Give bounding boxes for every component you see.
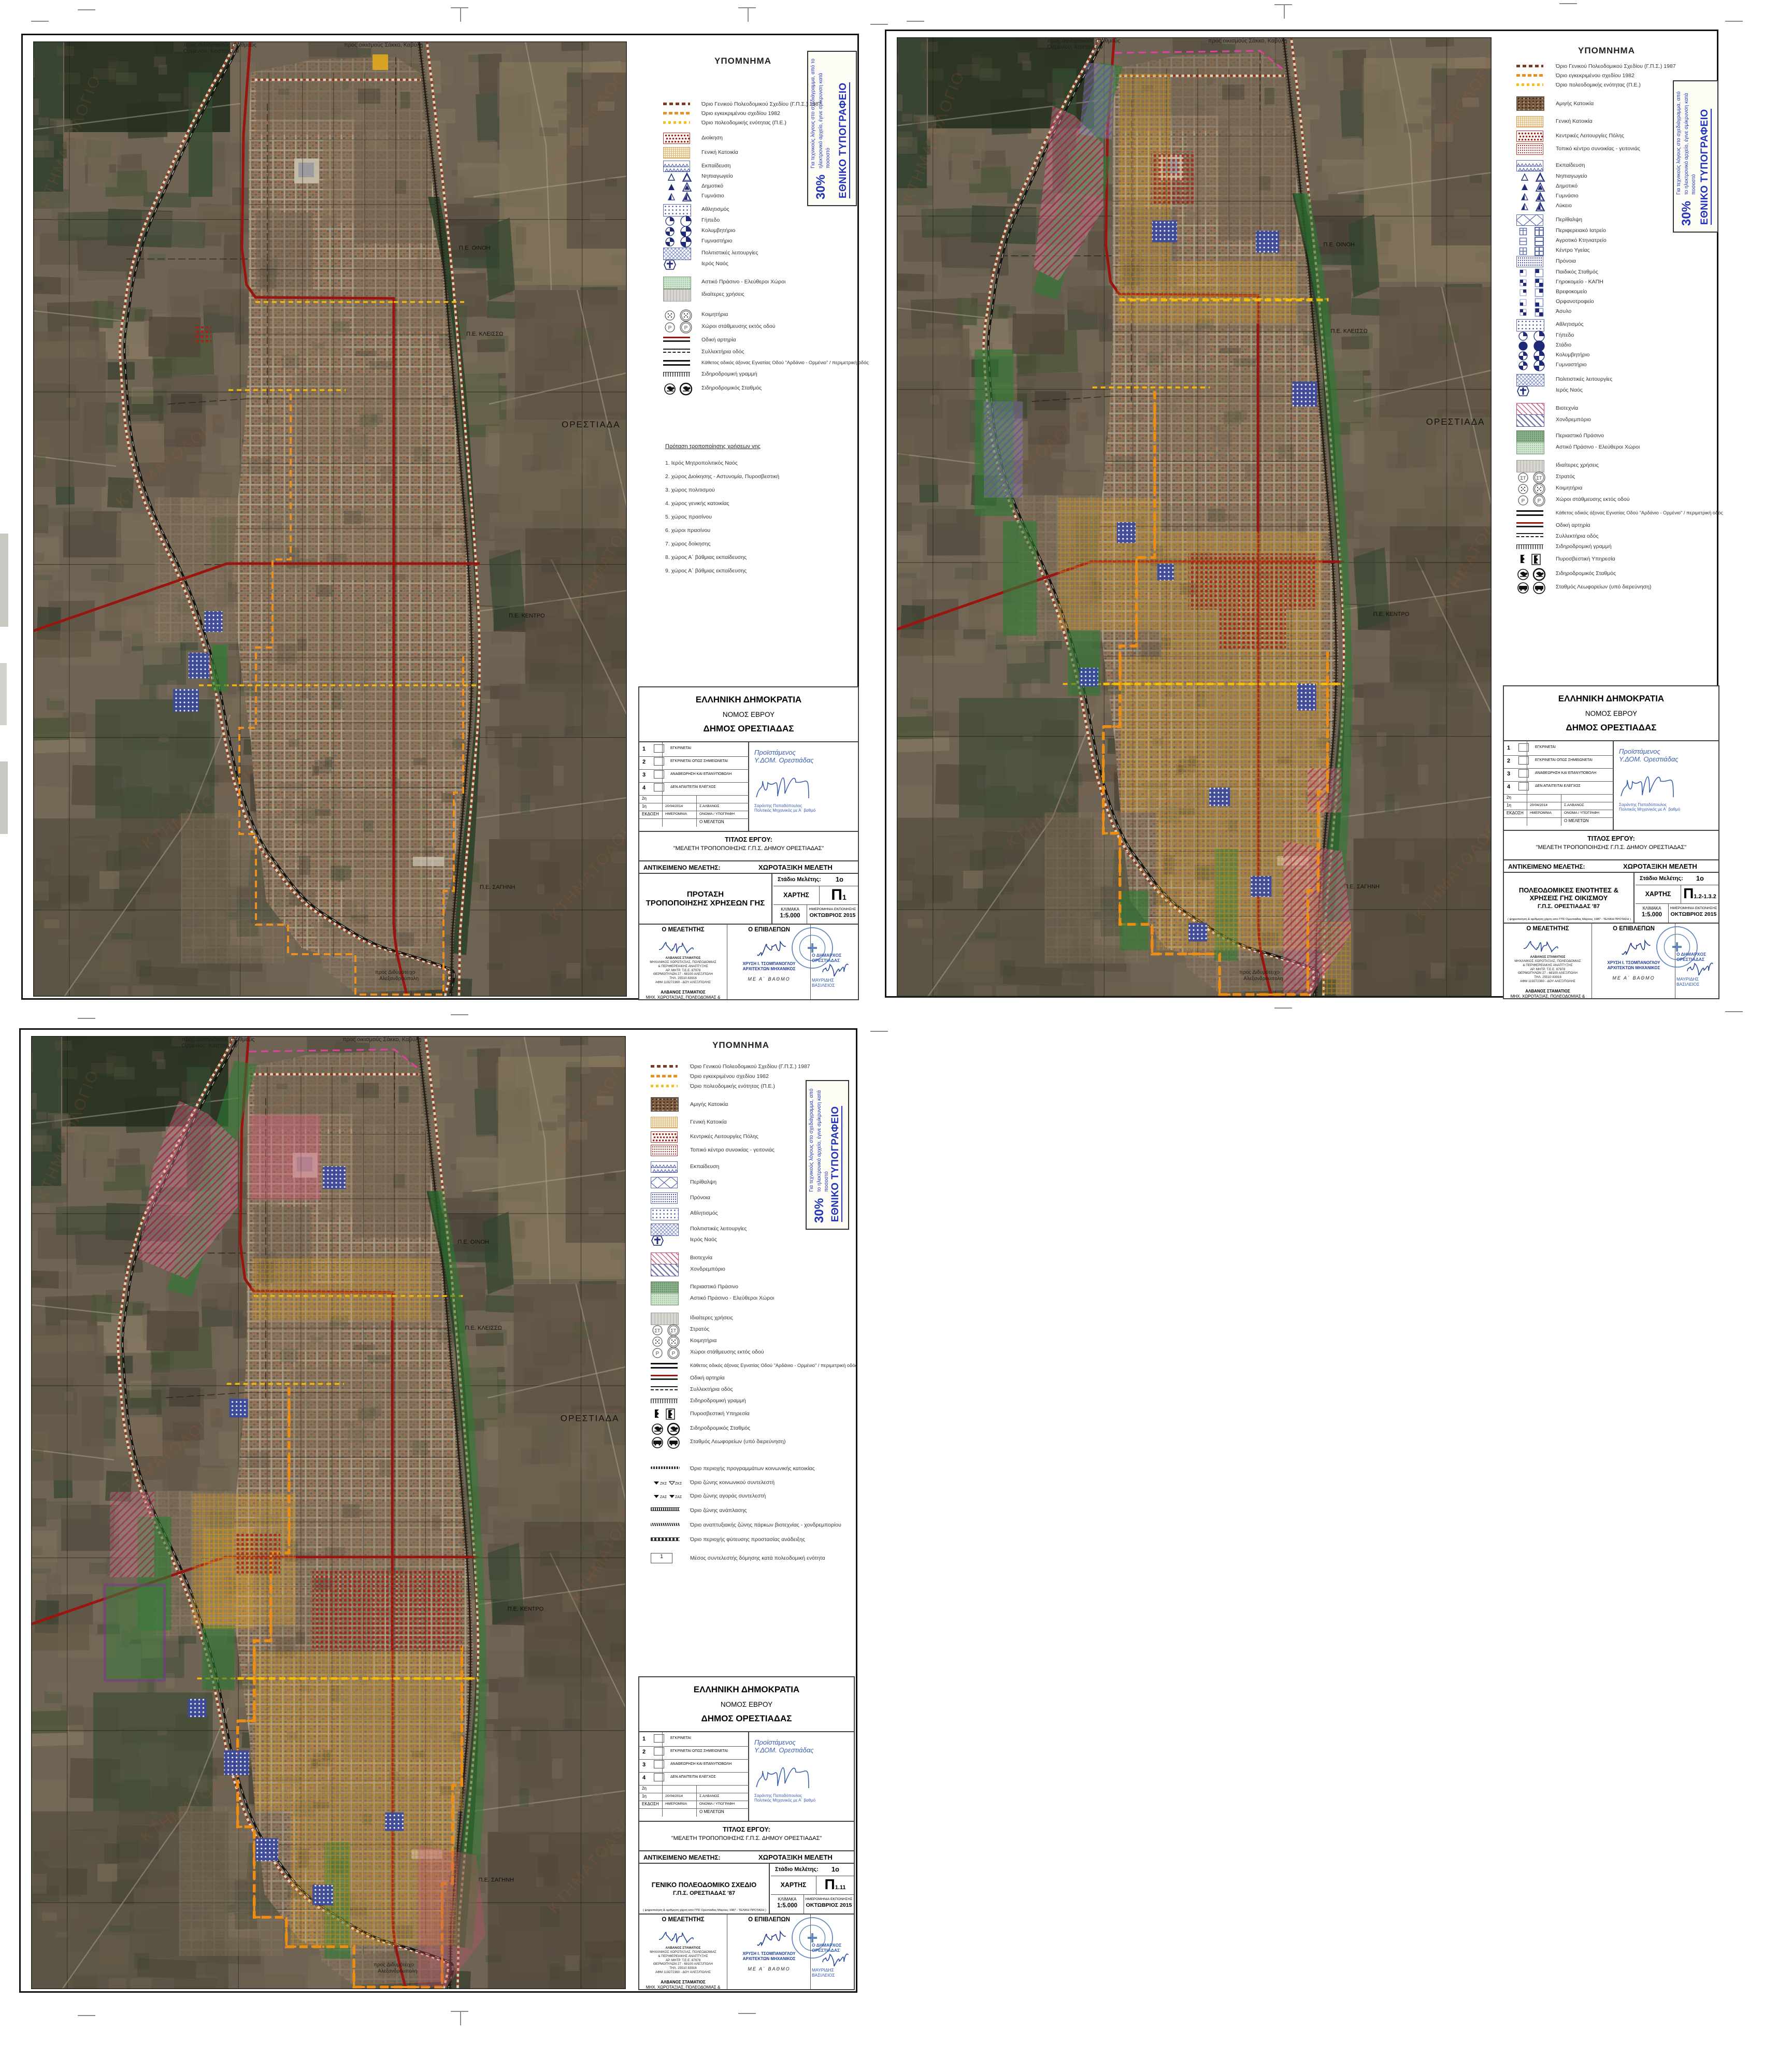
svg-text:ΣΤ: ΣΤ — [670, 1328, 677, 1333]
svg-text:ZΑΣ: ZΑΣ — [660, 1495, 667, 1499]
svg-text:P: P — [1522, 498, 1525, 504]
svg-text:P: P — [656, 1351, 659, 1357]
svg-text:ZΚΣ: ZΚΣ — [675, 1482, 682, 1486]
svg-text:P: P — [684, 325, 688, 331]
svg-text:ΣΤ: ΣΤ — [1536, 476, 1542, 481]
svg-text:P: P — [668, 325, 672, 331]
svg-text:P: P — [1538, 498, 1541, 504]
svg-text:ZΚΣ: ZΚΣ — [660, 1482, 667, 1486]
svg-text:P: P — [672, 1351, 676, 1357]
svg-text:ZΑΣ: ZΑΣ — [675, 1495, 682, 1499]
svg-text:ΣΤ: ΣΤ — [654, 1328, 661, 1333]
svg-text:ΣΤ: ΣΤ — [1520, 476, 1526, 481]
